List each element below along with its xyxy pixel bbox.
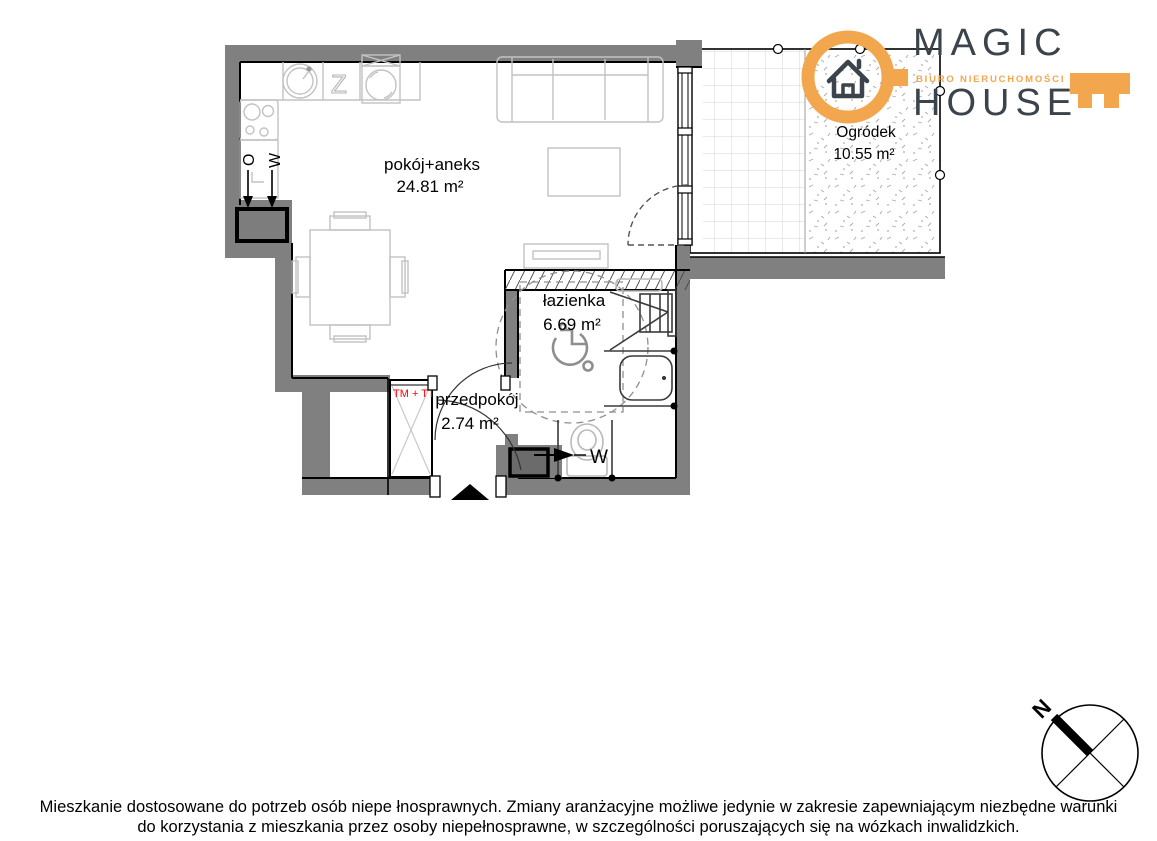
vent-w-label-bathroom: W [590, 447, 608, 468]
vent-w-label-kitchen: W [267, 152, 284, 168]
hallway-area-value: 2.74 m² [441, 414, 499, 433]
sofa [497, 57, 663, 122]
garden-area-value: 10.55 m² [833, 146, 894, 163]
entry-door-jamb-right [496, 476, 506, 497]
floor-plan-drawing: Z O W [0, 0, 1157, 841]
living-room-name: pokój+aneks [384, 155, 480, 174]
kitchen-sink-icon [283, 64, 317, 98]
bathroom-name: łazienka [543, 291, 606, 310]
disclaimer-line-2: do korzystania z mieszkania przez osoby … [0, 817, 1157, 837]
coffee-table [548, 148, 620, 196]
compass-north-label: N [1027, 694, 1056, 723]
washbasin [604, 348, 678, 410]
shaft-box-kitchen [237, 209, 287, 241]
garden-south-wall [688, 257, 945, 279]
compass-rose: N [1027, 694, 1138, 801]
floor-plan-page: Z O W [0, 0, 1157, 841]
tv-console [524, 244, 608, 268]
kitchen-area: Z O W [240, 55, 420, 208]
vent-o-label: O [241, 154, 258, 166]
tech-cabinet: TM + TT [390, 380, 435, 477]
kitchen-zone-letter: Z [331, 69, 347, 99]
hallway-name: przedpokój [435, 390, 518, 409]
garden-door-window [628, 67, 692, 245]
living-room-area: 24.81 m² [396, 177, 463, 196]
dining-table [292, 212, 408, 342]
entry-door-jamb-left [430, 476, 440, 497]
garden-name: Ogródek [836, 124, 896, 141]
disclaimer-line-1: Mieszkanie dostosowane do potrzeb osób n… [0, 797, 1157, 817]
entrance-arrow [451, 484, 489, 500]
logo-key-bit [1070, 73, 1130, 94]
logo-word-house: HOUSE [913, 82, 1078, 124]
logo-word-magic: MAGIC [913, 22, 1068, 64]
vent-arrow [554, 448, 574, 462]
disclaimer: Mieszkanie dostosowane do potrzeb osób n… [0, 797, 1157, 837]
bathroom-area-value: 6.69 m² [543, 315, 601, 334]
